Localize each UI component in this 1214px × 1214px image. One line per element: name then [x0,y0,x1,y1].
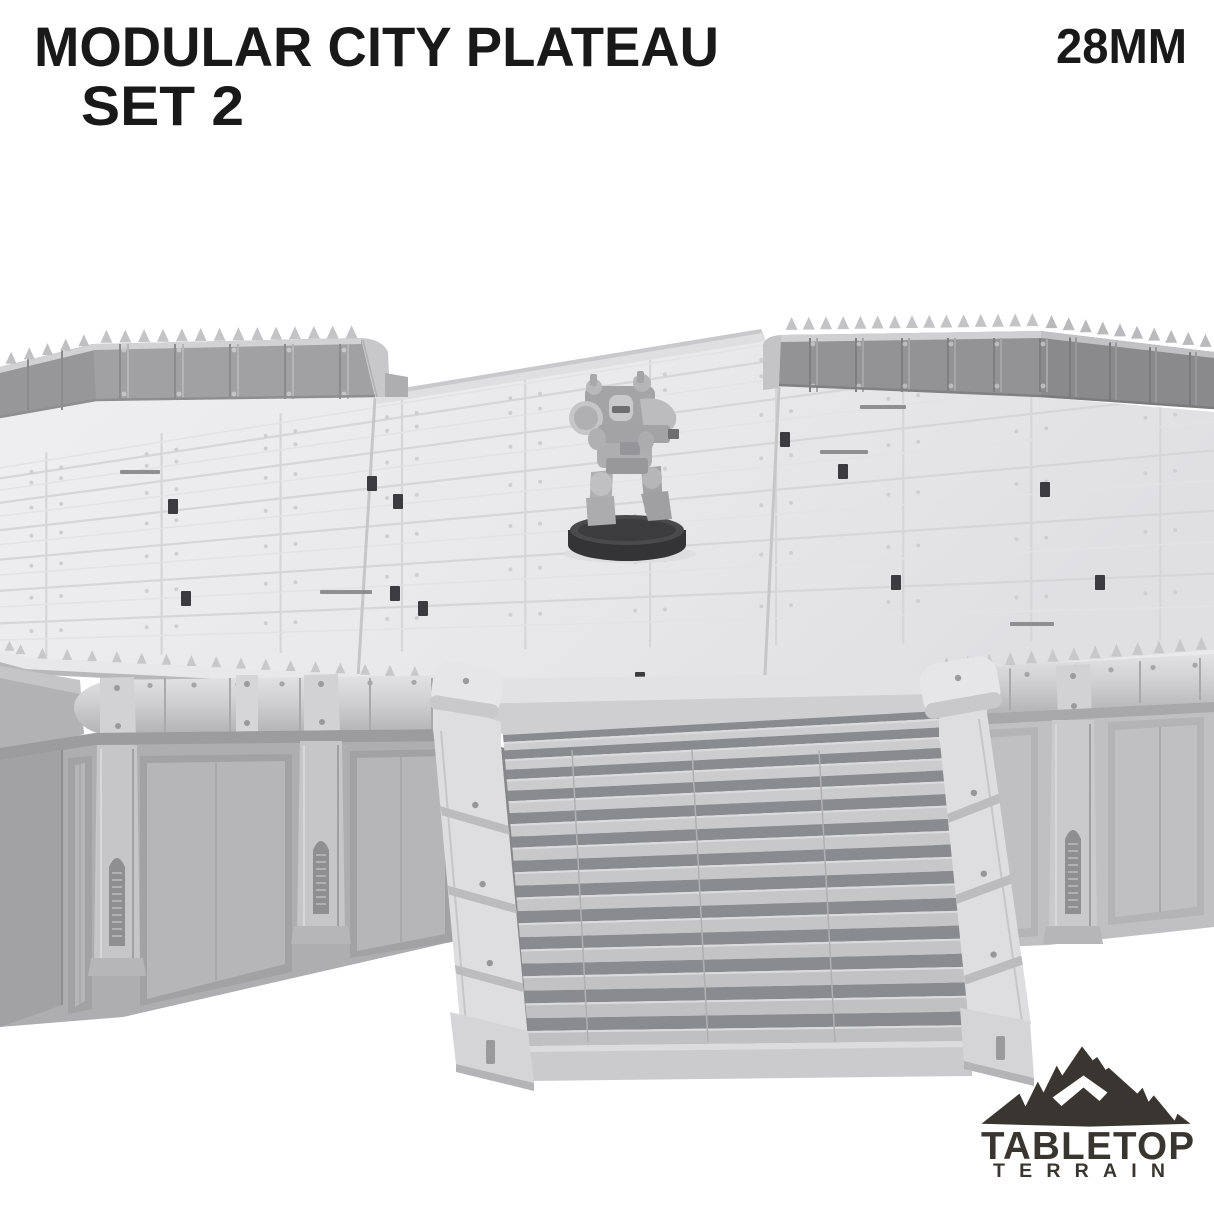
svg-text:SET 2: SET 2 [81,74,244,137]
svg-text:MODULAR CITY PLATEAU: MODULAR CITY PLATEAU [34,15,719,78]
svg-text:28MM: 28MM [1056,20,1187,74]
